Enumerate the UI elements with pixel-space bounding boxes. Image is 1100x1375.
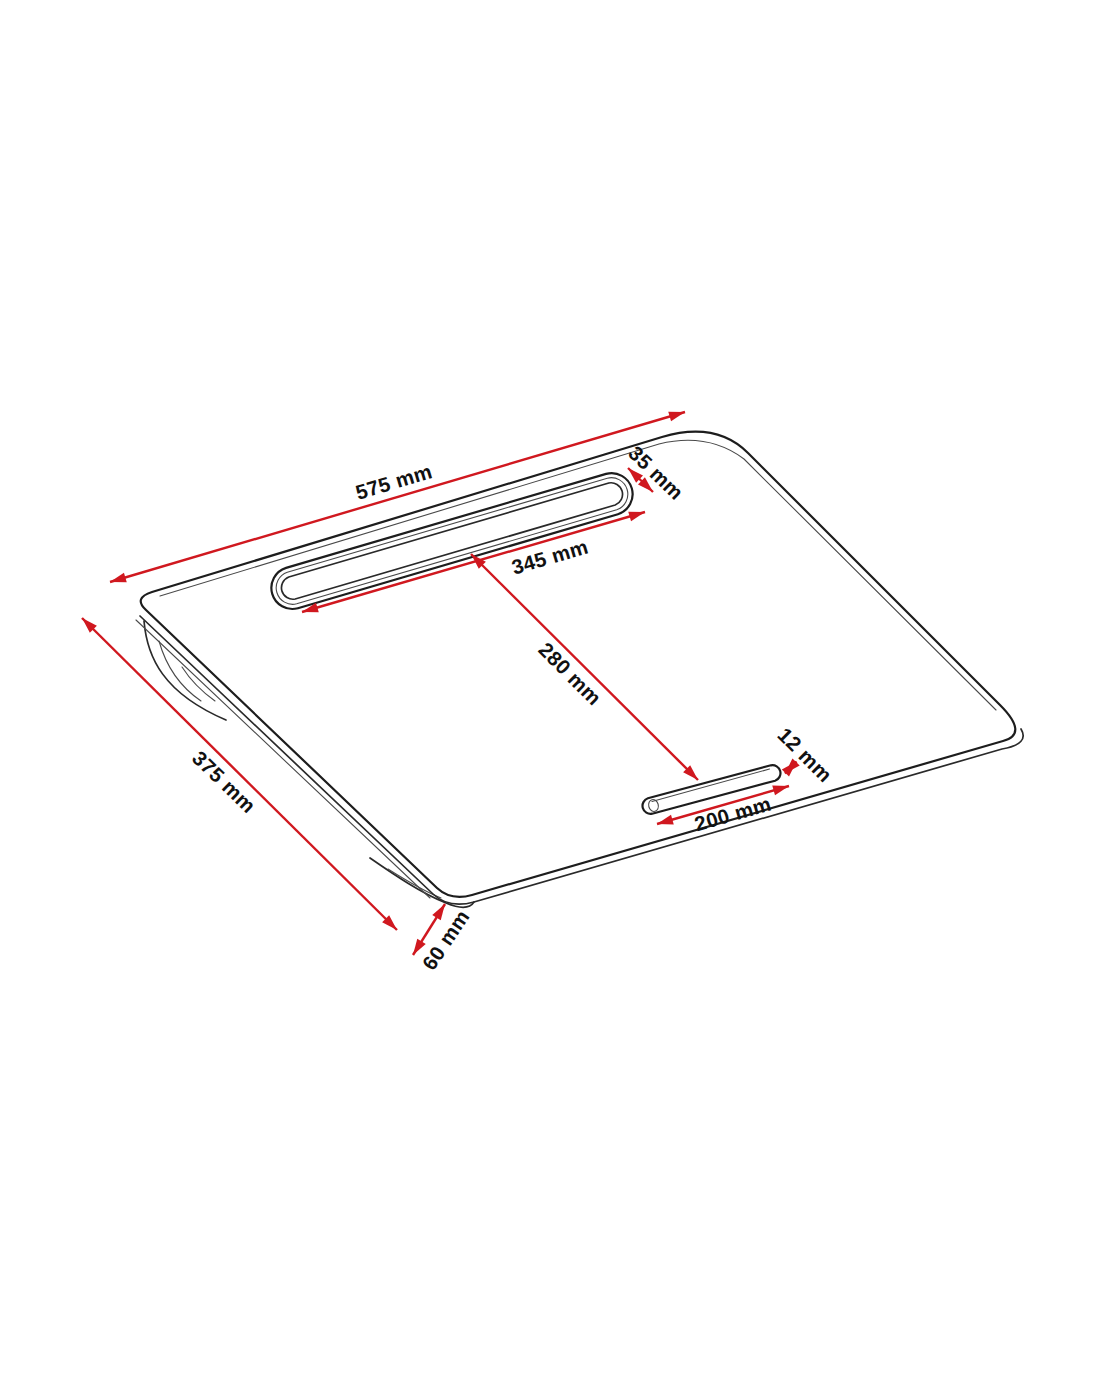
product-dimension-screenshot: 575 mm 345 mm 35 mm 280 mm 12 mm 200 mm … [0, 0, 1100, 1375]
dim-label-375: 375 mm [188, 746, 261, 817]
lapdesk-dimension-drawing: 575 mm 345 mm 35 mm 280 mm 12 mm 200 mm … [0, 0, 1100, 1375]
dim-label-60: 60 mm [417, 906, 474, 974]
